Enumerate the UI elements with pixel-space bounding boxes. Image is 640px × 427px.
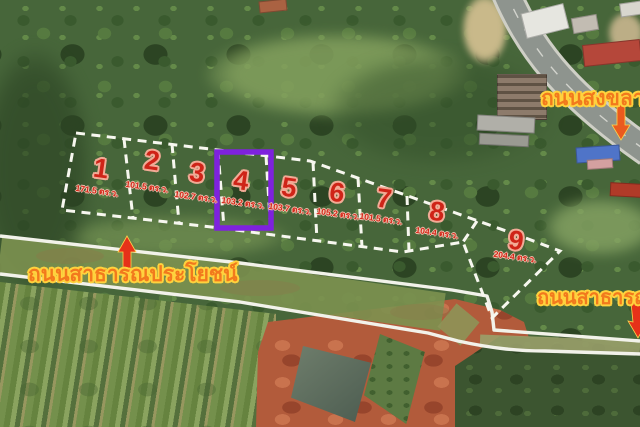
road-label-public-right: ถนนสาธารณ [537,288,640,308]
road-label-public-utility: ถนนสาธารณประโยชน์ [28,264,238,285]
building-shed [477,114,536,133]
building-multistory [497,74,547,120]
grass-clearing [60,216,290,258]
building-red-small [610,182,640,198]
building-pink [587,158,614,170]
aerial-photo: 1 2 3 4 5 6 7 8 9 171.5 ตร.ว. 101.5 ตร.ว… [0,0,640,427]
building-white-corner [619,1,640,18]
road-label-songkhla: ถนนสงขลา [541,88,640,109]
building-shed [479,133,530,148]
